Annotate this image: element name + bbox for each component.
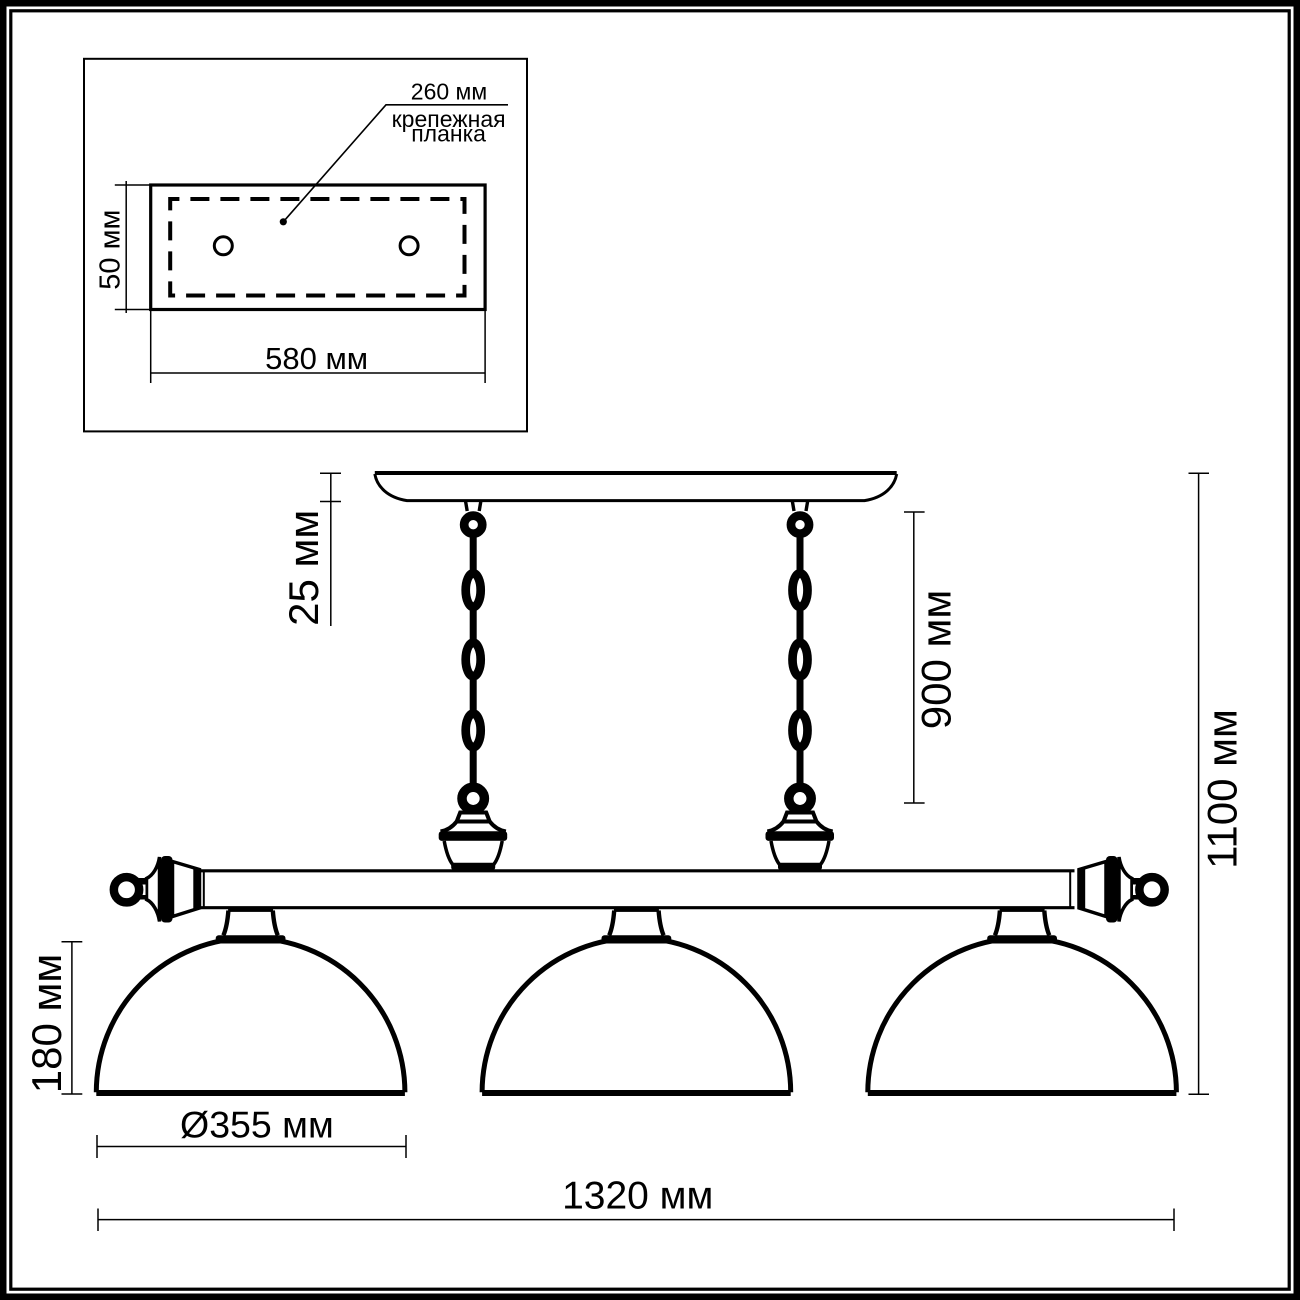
svg-text:50 мм: 50 мм — [95, 209, 127, 289]
svg-text:25 мм: 25 мм — [280, 510, 327, 626]
svg-text:1100 мм: 1100 мм — [1199, 709, 1246, 869]
svg-text:планка: планка — [411, 121, 486, 147]
svg-text:180 мм: 180 мм — [23, 954, 70, 1094]
svg-text:1320 мм: 1320 мм — [562, 1175, 713, 1218]
svg-text:900 мм: 900 мм — [913, 590, 960, 730]
svg-text:260 мм: 260 мм — [411, 79, 487, 105]
svg-text:580 мм: 580 мм — [265, 341, 368, 376]
svg-text:Ø355 мм: Ø355 мм — [180, 1103, 334, 1145]
